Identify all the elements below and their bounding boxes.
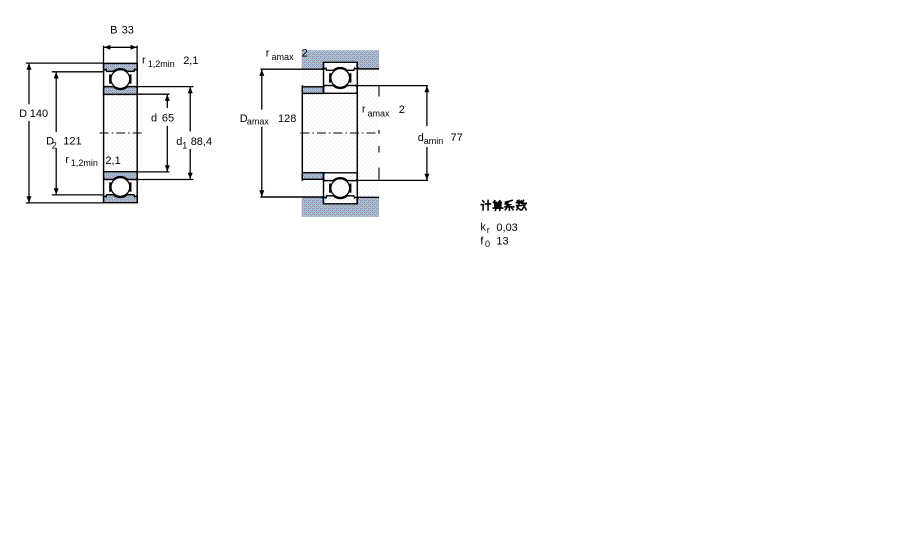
svg-text:amax: amax xyxy=(368,108,391,118)
svg-text:amax: amax xyxy=(272,52,295,62)
svg-text:140: 140 xyxy=(30,108,48,120)
svg-text:2,1: 2,1 xyxy=(105,155,120,167)
svg-text:33: 33 xyxy=(122,25,134,37)
svg-text:r: r xyxy=(362,104,366,116)
svg-text:2: 2 xyxy=(52,140,57,150)
svg-text:r: r xyxy=(65,154,69,166)
svg-text:1: 1 xyxy=(182,141,187,151)
svg-text:13: 13 xyxy=(496,236,508,248)
svg-text:d: d xyxy=(151,113,157,125)
svg-text:r: r xyxy=(487,225,490,235)
svg-text:77: 77 xyxy=(451,132,463,144)
svg-text:65: 65 xyxy=(162,113,174,125)
svg-text:88,4: 88,4 xyxy=(191,136,212,148)
svg-text:k: k xyxy=(480,221,486,233)
svg-text:121: 121 xyxy=(63,135,81,147)
svg-text:r: r xyxy=(142,54,146,66)
svg-text:128: 128 xyxy=(278,113,296,125)
svg-text:1,2min: 1,2min xyxy=(148,59,175,69)
svg-text:0,03: 0,03 xyxy=(496,222,517,234)
svg-text:amin: amin xyxy=(424,136,444,146)
svg-text:2,1: 2,1 xyxy=(183,55,198,67)
svg-text:amax: amax xyxy=(247,117,270,127)
svg-text:0: 0 xyxy=(485,239,490,249)
svg-text:1,2min: 1,2min xyxy=(71,158,98,168)
svg-text:r: r xyxy=(266,47,270,59)
svg-text:2: 2 xyxy=(302,47,308,59)
svg-text:2: 2 xyxy=(399,104,405,116)
svg-text:B: B xyxy=(110,25,117,37)
svg-text:D: D xyxy=(19,108,27,120)
